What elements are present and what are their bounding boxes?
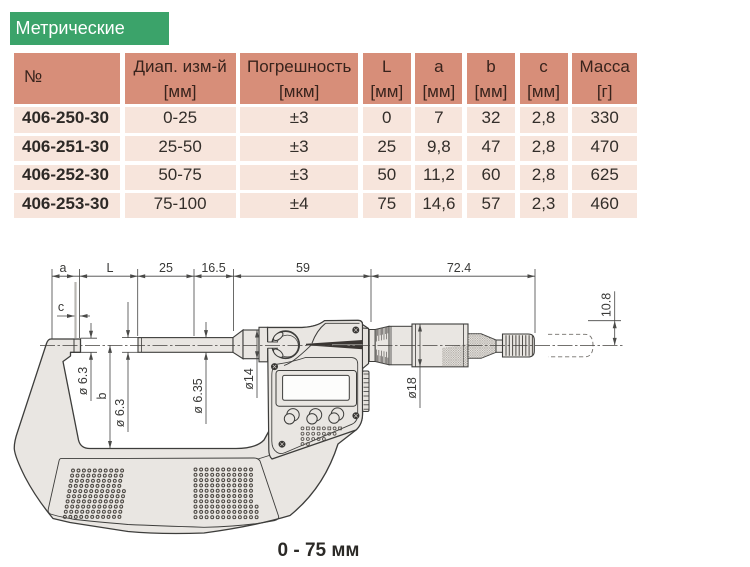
svg-text:ø 6.35: ø 6.35 bbox=[191, 378, 205, 413]
svg-text:ø 6.3: ø 6.3 bbox=[76, 367, 90, 396]
svg-text:16.5: 16.5 bbox=[201, 261, 225, 275]
svg-text:0 - 75 мм: 0 - 75 мм bbox=[278, 540, 360, 561]
svg-text:59: 59 bbox=[296, 261, 310, 275]
svg-text:72.4: 72.4 bbox=[447, 261, 471, 275]
svg-text:ø14: ø14 bbox=[242, 368, 256, 390]
svg-text:c: c bbox=[58, 300, 64, 314]
svg-text:ø 6.3: ø 6.3 bbox=[113, 399, 127, 428]
svg-text:25: 25 bbox=[159, 261, 173, 275]
svg-text:b: b bbox=[95, 392, 109, 399]
svg-text:a: a bbox=[60, 261, 67, 275]
svg-text:L: L bbox=[107, 261, 114, 275]
svg-text:ø18: ø18 bbox=[405, 377, 419, 399]
svg-text:10.8: 10.8 bbox=[600, 293, 614, 317]
